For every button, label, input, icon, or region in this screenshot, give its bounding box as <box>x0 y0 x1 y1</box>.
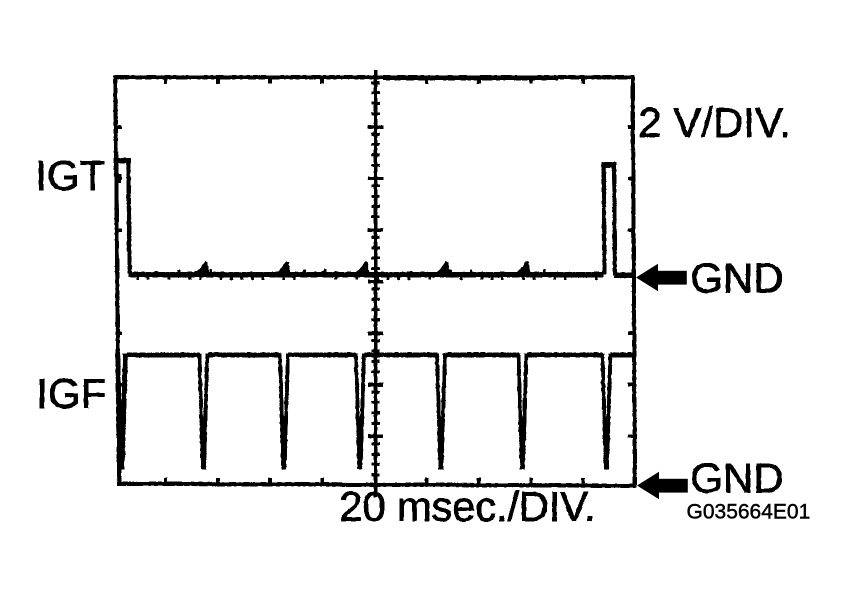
svg-text:2 V/DIV.: 2 V/DIV. <box>638 99 791 146</box>
svg-text:20 msec./DIV.: 20 msec./DIV. <box>339 483 595 530</box>
svg-text:G035664E01: G035664E01 <box>687 501 811 524</box>
svg-text:GND: GND <box>690 454 783 501</box>
svg-text:GND: GND <box>690 254 783 301</box>
svg-text:IGF: IGF <box>36 370 106 417</box>
svg-text:IGT: IGT <box>35 152 105 199</box>
